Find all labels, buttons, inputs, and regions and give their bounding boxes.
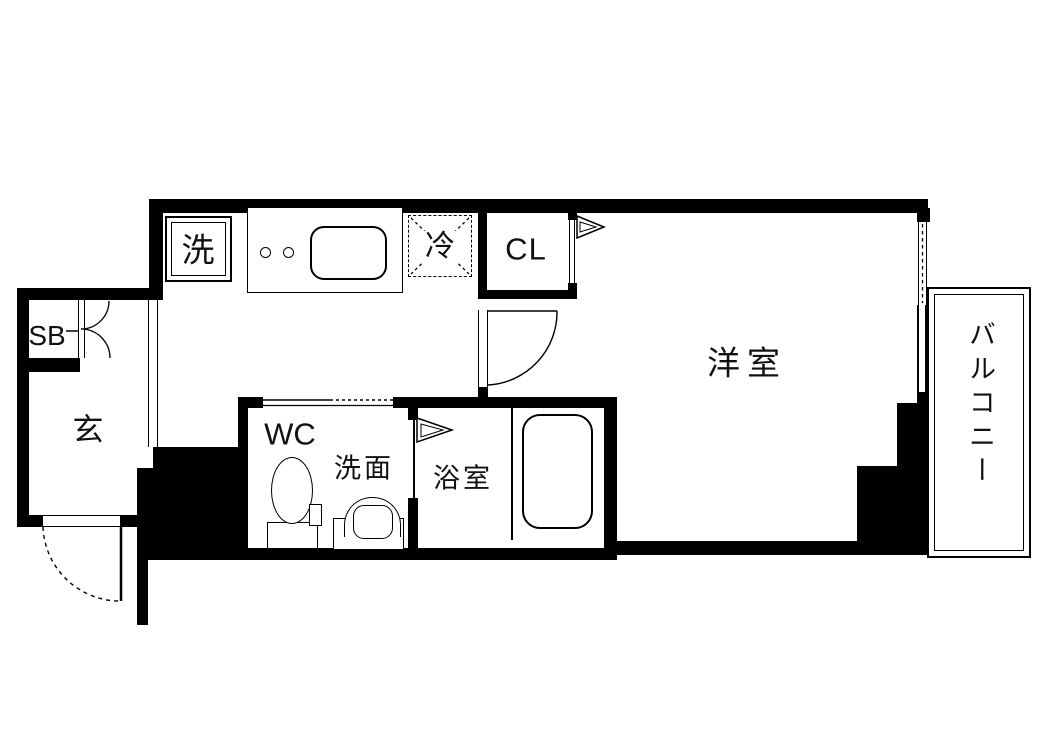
wall-balcony-step-2 <box>897 403 917 555</box>
entrance-door-arc <box>43 527 121 601</box>
stove-burner-1 <box>260 247 271 258</box>
closet-label: CL <box>505 234 547 265</box>
wall-wc-left <box>238 397 248 560</box>
bath-folding-door-icon-inner <box>421 424 443 437</box>
bathroom-label: 浴室 <box>433 466 493 493</box>
wall-closet-left <box>478 205 487 299</box>
entrance-label: 玄 <box>73 415 104 446</box>
wall-shoebox-bottom <box>17 358 80 372</box>
bath-folding-door-icon <box>417 418 452 442</box>
balcony-label: バルコニー <box>961 320 1000 545</box>
wall-sanitary-top-right <box>393 397 617 408</box>
window-fixed <box>918 222 927 305</box>
toilet-handle <box>309 504 322 526</box>
wall-entrance-bottom-right <box>120 515 138 527</box>
wall-bath-divider-top <box>408 408 418 420</box>
bathtub <box>522 414 593 529</box>
shoebox-door-jamb <box>78 300 85 358</box>
entrance-door-opening <box>43 515 120 527</box>
sliding-door-opening <box>263 397 393 408</box>
wall-balcony-step-1 <box>857 466 897 555</box>
door-jamb-western <box>478 310 488 387</box>
shoebox-door-arc-bottom <box>81 329 110 358</box>
washer-label: 洗 <box>182 234 215 267</box>
toilet-tank <box>267 522 318 549</box>
toilet-label: WC <box>264 419 316 450</box>
entrance-step-line <box>148 300 158 447</box>
wall-top-right-stub <box>917 208 930 222</box>
toilet-bowl <box>271 457 313 524</box>
western-room-label: 洋室 <box>707 347 787 380</box>
wall-kitchen-left <box>149 199 163 300</box>
wall-bath-right <box>604 397 617 553</box>
wall-closet-right-bottom <box>568 283 577 299</box>
washroom-label: 洗面 <box>334 456 394 483</box>
wall-closet-bottom <box>478 290 577 299</box>
shoebox-door-arc-top <box>81 301 109 329</box>
stove-burner-2 <box>283 247 294 258</box>
shoebox-label: SB <box>28 322 65 350</box>
wall-porch-column <box>137 560 148 625</box>
western-door-arc <box>488 311 557 385</box>
wall-core-step <box>137 468 153 560</box>
wall-shoebox-top <box>17 288 152 300</box>
wall-western-bottom <box>617 541 857 555</box>
closet-folding-door-icon <box>577 216 604 238</box>
closet-door-line <box>569 220 575 283</box>
bath-tub-divider-line <box>511 408 513 540</box>
wall-sanitary-bottom <box>238 548 617 560</box>
kitchen-sink <box>310 226 387 280</box>
wall-closet-right-top <box>568 208 577 220</box>
washstand-basin <box>353 505 393 539</box>
window-sliding-door <box>917 305 927 392</box>
fridge-label: 冷 <box>423 231 457 263</box>
closet-folding-door-icon-inner <box>580 222 596 232</box>
floor-plan: 洗 冷 CL 洋室 玄 SB WC 洗面 浴室 バルコニー <box>0 0 1040 745</box>
wall-outer-left <box>17 288 29 527</box>
bath-folding-door-line <box>413 420 415 498</box>
wall-entrance-bottom-left <box>17 515 43 527</box>
wall-core-block <box>153 447 248 560</box>
